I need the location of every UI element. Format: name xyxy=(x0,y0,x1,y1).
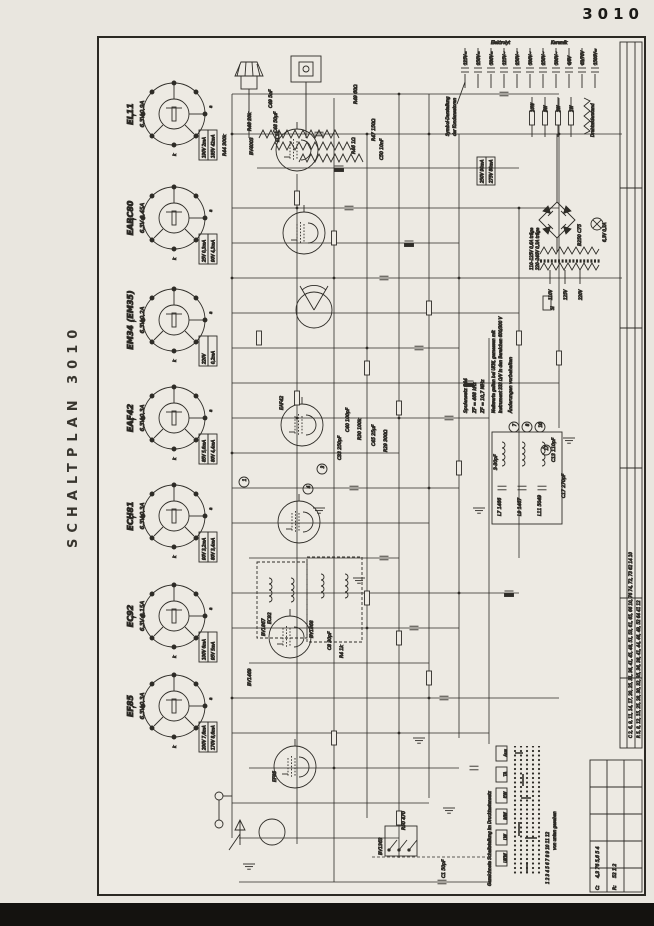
tube-socket-column: EL11 6,3V 0,9A f k a 190V 2mA 185V 42mA … xyxy=(126,81,217,752)
cap-rating: 1500V= xyxy=(593,49,598,65)
capacitor-legend: Elektrolyt Keramik 125V= 250V= 500V= 125… xyxy=(445,40,599,136)
meas-value: 250V 90mA xyxy=(480,159,485,183)
switch-button-label: MW xyxy=(503,811,508,819)
meas-value: 275V 80mA xyxy=(489,159,494,183)
resistor-rating: 5W xyxy=(543,104,548,112)
switch-button: KW xyxy=(496,788,508,803)
measurement-box: 25V 0,3mA 90V 4,3mA xyxy=(199,234,217,264)
pin-label: k xyxy=(172,153,177,156)
tube-socket-em34: EM34 (EM35) 6,3V 0,2A f k a 220V 0,2mA xyxy=(126,287,217,366)
tube-heater: 6,3V 0,45A xyxy=(140,203,146,234)
legend-group-label: Elektrolyt xyxy=(491,40,511,45)
measurement-box: 250V 90mA 275V 80mA xyxy=(477,157,495,185)
junction-number: 3 xyxy=(320,465,325,468)
tube-name: EC92 xyxy=(126,604,135,627)
table-row-label: R: xyxy=(612,885,618,890)
pin-label: a xyxy=(208,507,213,510)
label-cap: C33 250pF xyxy=(337,435,343,460)
switch-title: Gezeichnete Schaltstellung im Drucktaste… xyxy=(487,790,492,886)
power-supply: B250 C75 6,3V 0,3A 110V 125V 220V Si 110… xyxy=(477,134,607,310)
label-output-transformer: BV4003 xyxy=(249,137,255,155)
label-coil: L9 1467 xyxy=(517,498,523,516)
rectifier-label: B250 C75 xyxy=(577,224,583,246)
label-coil: L11 5049 xyxy=(537,495,543,516)
bridge-rectifier xyxy=(539,134,575,252)
junction-number: 4 xyxy=(306,485,311,488)
cap-rating: 250V~ xyxy=(515,51,520,65)
label-if-coil: BV1469 xyxy=(247,668,253,686)
switch-matrix: Gezeichnete Schaltstellung im Drucktaste… xyxy=(487,746,557,886)
switch-button: UKW xyxy=(496,851,508,866)
tube-socket-eaf42: EAF42 6,3V 0,3A f k a 85V 5,6mA 80V 4,4m… xyxy=(126,385,217,464)
label-cap: C45 25µF xyxy=(371,424,377,446)
label-resistor: R29 300Ω xyxy=(383,429,389,452)
pin-label: k xyxy=(172,555,177,558)
cap-rating: 63/70V xyxy=(580,50,585,65)
junction-number: 8 xyxy=(525,423,530,426)
table-row-values: 52 1 2 xyxy=(612,864,618,878)
legend-cap: 6/8V xyxy=(565,48,573,88)
switch-row-numbers: 1 2 3 4 5 6 7 8 9 10 11 12 xyxy=(545,831,550,884)
pin-label: a xyxy=(208,409,213,412)
switch-button-label: TA xyxy=(503,771,508,776)
tube-name: EL11 xyxy=(126,103,135,125)
cap-list: C 2, 6, 9, 11, 14, 17, 20, 25, 31, 36, 4… xyxy=(628,552,633,738)
legend-cap: 500V= xyxy=(487,48,495,88)
measurement-box: 85V 5,6mA 80V 4,4mA xyxy=(199,434,217,464)
switch-button-label: Aus xyxy=(503,749,508,757)
tube-socket-ef85: EF85 6,3V 0,3A f k a 200V 7,6mA 170V 8,6… xyxy=(126,673,217,752)
label-switch-box: BV1363 xyxy=(378,837,384,855)
tube-name: EM34 (EM35) xyxy=(126,290,135,349)
sheet-number: 3010 xyxy=(582,5,644,23)
label-if-coil: BV1867 xyxy=(261,618,267,636)
note-measurement: Instrument 333 Ω/V in den Bereichen 600/… xyxy=(498,316,503,413)
note-if2: ZF = 10,7 MHz xyxy=(480,379,486,414)
label-if-coil: BV1868 xyxy=(309,620,315,638)
tube-name: EF85 xyxy=(126,695,135,717)
legend-title: der Kondensatoren xyxy=(452,97,457,136)
label-resistor: R30 100k xyxy=(357,418,363,440)
label-cap: C8 30pF xyxy=(327,631,333,650)
label-resistor: R49 60Ω xyxy=(353,84,359,104)
fuse-rating: 220–240V 0,3A träge xyxy=(535,227,540,270)
tube-heater: 6,3V 0,3A xyxy=(140,502,146,529)
tube-heater: 6,3V 0,9A xyxy=(140,100,146,127)
meas-value: 185V 42mA xyxy=(211,134,216,158)
note-changes: Änderungen vorbehalten xyxy=(507,357,514,414)
page-title: SCHALTPLAN 3010 xyxy=(66,324,81,548)
tube-name: EABC80 xyxy=(126,200,135,235)
cap-rating: 500V= xyxy=(489,51,494,65)
label-cap: C40 100pF xyxy=(345,407,351,432)
switch-button-label: UKW xyxy=(503,852,508,863)
switch-button: MW xyxy=(496,809,508,824)
cap-rating: 6/8V xyxy=(567,56,572,65)
meas-value: 80V 3,4mA xyxy=(211,538,216,560)
scan-edge-band xyxy=(0,903,654,926)
label-tube: EC92 xyxy=(267,612,273,624)
antenna-section: BV1363 xyxy=(215,792,417,856)
oscillator-section: L7 1466 L9 1467 L11 5049 3-30pF C13 110p… xyxy=(492,432,567,524)
schematic-drawing: EL11 6,3V 0,9A f k a 190V 2mA 185V 42mA … xyxy=(99,38,644,894)
switch-button-label: KW xyxy=(503,791,508,799)
tube-heater: 6,3V 0,15A xyxy=(140,601,146,632)
legend-cap: 500V~ xyxy=(526,48,534,88)
resistor-rating: 10W xyxy=(530,102,535,112)
schematic-frame: EL11 6,3V 0,9A f k a 190V 2mA 185V 42mA … xyxy=(97,36,646,896)
label-resistor: R4 1k xyxy=(339,645,345,658)
choke-winding xyxy=(299,154,363,162)
tube-name: ECH81 xyxy=(126,501,135,530)
label-cap: C13 110pF xyxy=(551,437,557,462)
meas-value: 220V xyxy=(202,353,207,364)
cap-rating: 125V~ xyxy=(502,51,507,65)
note-measurement: Meßwerte gelten bei UKW, gemessen mit xyxy=(491,330,496,413)
pin-label: a xyxy=(208,607,213,610)
cap-rating: 500V~ xyxy=(554,51,559,65)
meas-value: 200V 7,6mA xyxy=(202,725,207,750)
speaker-section: BV4003 xyxy=(235,56,363,162)
scanned-schematic-page: { "page": {"corner_number": "3010", "sid… xyxy=(0,0,654,926)
junction-number: 7 xyxy=(512,423,517,426)
tube-small-body xyxy=(259,819,285,845)
junction-numbers: 1 3 4 7 8 10 17 xyxy=(239,422,551,494)
pin-label: a xyxy=(208,209,213,212)
junction-number: 10 xyxy=(538,422,543,428)
pin-label: a xyxy=(208,697,213,700)
switch-button-label: LW xyxy=(503,833,508,840)
resistor-rating: 2W xyxy=(556,104,561,112)
tube-eaf42-body xyxy=(281,397,323,446)
cap-rating: 250V= xyxy=(476,51,481,65)
dipole-icon xyxy=(215,792,232,828)
cap-rating: 125V= xyxy=(463,51,468,65)
meas-value: 170V 8,6mA xyxy=(211,725,216,750)
legend-cap: 63/70V xyxy=(578,48,586,88)
legend-cap: 500V~ xyxy=(552,48,560,88)
junction-number: 17 xyxy=(544,445,549,451)
legend-cap: 250V~ xyxy=(539,48,547,88)
tube-ec92-body xyxy=(269,609,311,658)
transformer-primary xyxy=(540,263,599,270)
label-cap: C17 270pF xyxy=(561,473,567,498)
tube-heater: 6,3V 0,2A xyxy=(140,306,146,333)
mains-tap: 110V xyxy=(548,289,553,300)
switch-button: LW xyxy=(496,830,508,845)
meas-value: 80V 4,4mA xyxy=(211,440,216,462)
legend-cap: 250V~ xyxy=(513,48,521,88)
meas-value: 0,2mA xyxy=(211,351,216,364)
label-resistor: R44 300k xyxy=(222,134,228,156)
tube-eabc80-body xyxy=(283,205,325,254)
meas-value: 90V 4,3mA xyxy=(211,240,216,262)
contact-dot-grid xyxy=(511,746,543,874)
label-resistor: R48 20k xyxy=(247,112,253,131)
label-cap: C49 5nF xyxy=(268,89,274,108)
antenna-icon xyxy=(229,820,245,850)
legend-cap: 250V= xyxy=(474,48,482,88)
meas-value: 100V 6mA xyxy=(202,639,207,660)
label-resistor: R47 150Ω xyxy=(371,118,377,141)
circuit-tubes: EL11 EAF42 EC92 EF85 xyxy=(259,122,332,845)
tube-heater: 6,3V 0,3A xyxy=(140,692,146,719)
label-tube: EAF42 xyxy=(279,396,285,410)
pin-label: a xyxy=(208,311,213,314)
label-resistor: R46 1Ω xyxy=(351,137,357,154)
note-if1: ZF = 468 kHz xyxy=(472,382,478,414)
resistor-legend: 10W 5W 2W 1W Drahtwiderstand xyxy=(530,97,596,137)
component-list-strip: C 2, 6, 9, 11, 14, 17, 20, 25, 31, 36, 4… xyxy=(620,42,642,748)
meas-value: 85V 5,6mA xyxy=(202,440,207,462)
pin-label: k xyxy=(172,655,177,658)
antenna-switch-box: BV1363 xyxy=(378,826,417,856)
measurement-box: 190V 2mA 185V 42mA xyxy=(199,130,217,160)
legend-cap: 1500V= xyxy=(591,48,599,88)
cap-rating: 250V~ xyxy=(541,51,546,65)
junction-number: 1 xyxy=(242,479,247,482)
dial-lamp-label: 6,3V 0,3A xyxy=(602,222,607,242)
mains-tap: 220V xyxy=(578,289,583,300)
meas-value: 90V 3,2mA xyxy=(202,538,207,560)
measurement-box: 90V 3,2mA 80V 3,4mA xyxy=(199,532,217,562)
label-cap: C48 50µF xyxy=(273,111,279,133)
table-row-values: 4,3 76 5,6 5 4 xyxy=(595,846,601,878)
tube-socket-el11: EL11 6,3V 0,9A f k a 190V 2mA 185V 42mA xyxy=(126,81,217,160)
label-cap: C50 10nF xyxy=(379,138,385,160)
measurement-box: 100V 6mA 95V 5mA xyxy=(199,632,217,662)
measurement-box: 200V 7,6mA 170V 8,6mA xyxy=(199,722,217,752)
legend-cap: 125V~ xyxy=(500,48,508,88)
meas-value: 25V 0,3mA xyxy=(202,240,207,262)
switch-button: TA xyxy=(496,767,508,782)
resistor-list: R 5, 8, 12, 15, 25, 28, 30, 32, 35, 36, … xyxy=(636,600,641,738)
speaker-icon xyxy=(291,56,321,138)
mains-tap: 125V xyxy=(563,289,568,300)
tube-ech81-body xyxy=(278,494,320,543)
label-cap: C1 50pF xyxy=(441,859,447,878)
note-coilset: Spulensatz 544 xyxy=(463,378,469,413)
table-row-label: C: xyxy=(595,885,601,890)
switch-footnote: von unten gesehen xyxy=(552,811,557,850)
label-coil: L7 1466 xyxy=(497,498,503,516)
meas-value: 95V 5mA xyxy=(211,641,216,660)
transformer-secondary xyxy=(540,247,599,254)
cap-rating: 500V~ xyxy=(528,51,533,65)
fuse-rating: 110–125V 0,6A träge xyxy=(529,227,534,270)
tube-ef85-body xyxy=(274,739,316,788)
component-labels: R44 300k R48 20k C49 5nF C48 50µF R49 60… xyxy=(222,84,447,878)
tube-socket-ech81: ECH81 6,3V 0,3A f k a 90V 3,2mA 80V 3,4m… xyxy=(126,483,217,562)
pin-label: k xyxy=(172,257,177,260)
tube-name: EAF42 xyxy=(126,403,135,432)
legend-group-label: Keramik xyxy=(551,40,568,45)
resistor-rating: 1W xyxy=(569,104,574,112)
legend-title: Symbol-Darstellung xyxy=(445,96,450,136)
measurement-box: 220V 0,2mA xyxy=(199,336,217,366)
pin-label: k xyxy=(172,745,177,748)
tube-heater: 6,3V 0,3A xyxy=(140,404,146,431)
label-resistor: R50 470 xyxy=(401,811,407,830)
corner-table: C: 4,3 76 5,6 5 4 R: 52 1 2 xyxy=(590,760,642,892)
pin-label: a xyxy=(208,105,213,108)
tube-em34-body xyxy=(296,285,332,328)
label-trimmer: 3-30pF xyxy=(493,454,499,470)
tube-socket-eabc80: EABC80 6,3V 0,45A f k a 25V 0,3mA 90V 4,… xyxy=(126,185,217,264)
tube-socket-ec92: EC92 6,3V 0,15A f k a 100V 6mA 95V 5mA xyxy=(126,583,217,662)
wire-resistor-label: Drahtwiderstand xyxy=(590,103,595,137)
meas-value: 190V 2mA xyxy=(202,137,207,158)
notes-block: Spulensatz 544 ZF = 468 kHz ZF = 10,7 MH… xyxy=(463,316,514,414)
label-tube: EF85 xyxy=(272,771,278,782)
pin-label: k xyxy=(172,359,177,362)
switch-button: Aus xyxy=(496,746,508,761)
pin-label: k xyxy=(172,457,177,460)
